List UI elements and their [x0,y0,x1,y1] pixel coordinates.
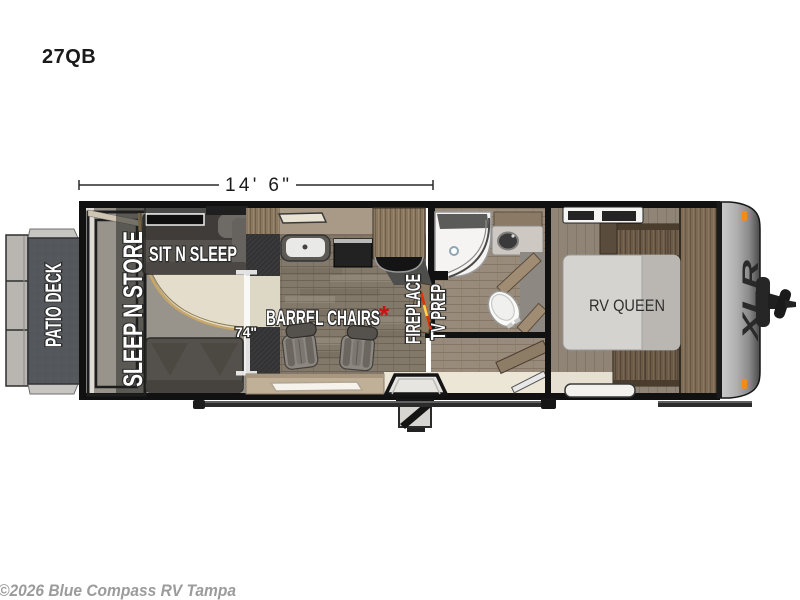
svg-text:TV PREP: TV PREP [428,284,450,340]
svg-text:SLEEP N STORE: SLEEP N STORE [118,231,148,387]
svg-text:PATIO DECK: PATIO DECK [41,263,66,347]
svg-text:74": 74" [235,325,257,340]
svg-text:SIT N SLEEP: SIT N SLEEP [149,243,237,266]
svg-text:©2026 Blue Compass RV Tampa: ©2026 Blue Compass RV Tampa [0,582,236,600]
svg-text:FIREPLACE: FIREPLACE [403,274,425,344]
svg-text:*: * [379,300,390,330]
svg-text:RV QUEEN: RV QUEEN [589,296,665,315]
svg-text:27QB: 27QB [42,46,96,68]
